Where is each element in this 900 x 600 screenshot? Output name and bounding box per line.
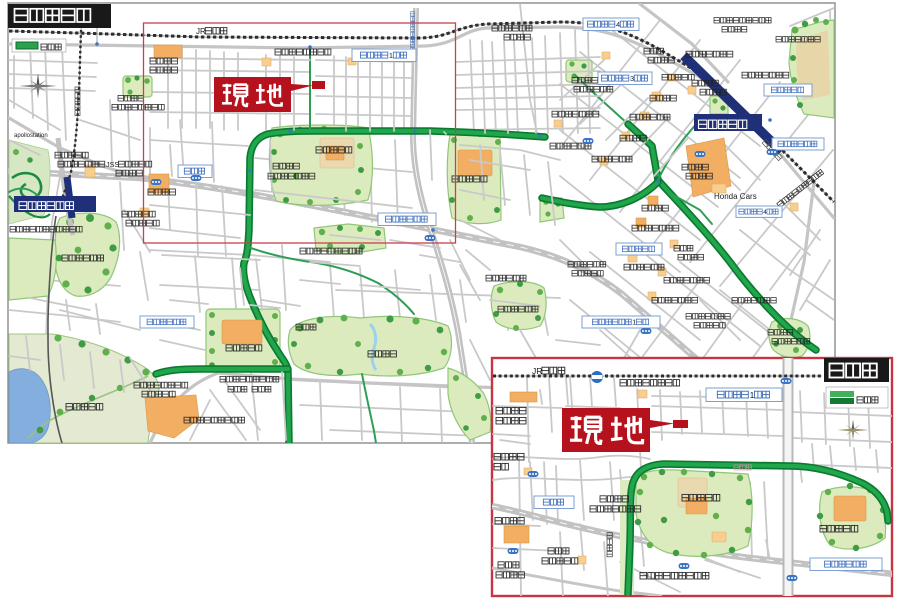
svg-text:1: 1 — [389, 51, 393, 60]
svg-text:1: 1 — [750, 390, 755, 400]
svg-text:Honda Cars: Honda Cars — [714, 192, 757, 201]
svg-text:JSS: JSS — [106, 160, 119, 169]
svg-text:JR: JR — [532, 366, 542, 376]
svg-text:3: 3 — [630, 74, 634, 83]
svg-text:4: 4 — [616, 20, 620, 29]
svg-text:apollostation: apollostation — [14, 133, 48, 139]
svg-text:1: 1 — [632, 320, 636, 327]
svg-text:JR: JR — [196, 27, 206, 36]
